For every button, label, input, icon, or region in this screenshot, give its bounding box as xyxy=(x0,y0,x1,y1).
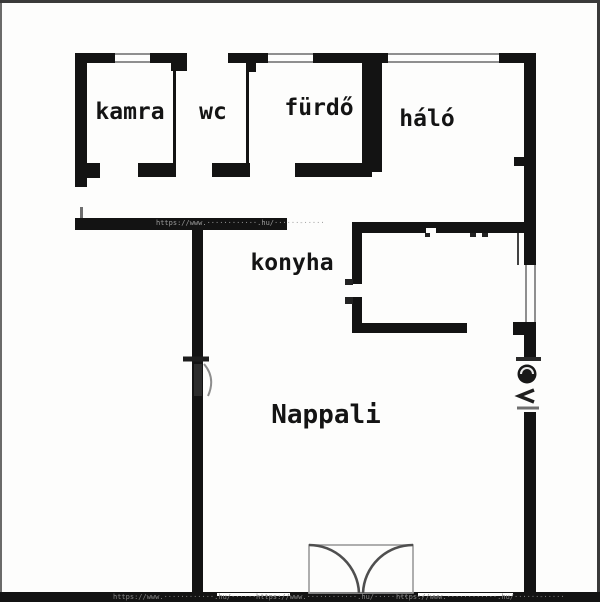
window-halo xyxy=(388,53,499,63)
floor-plan: kamra wc fürdő háló konyha Nappali https… xyxy=(0,0,600,602)
door-jamb-konyha-b xyxy=(345,297,353,304)
wall-kamra-bottom xyxy=(138,163,176,177)
door-jamb-konyha-a xyxy=(345,279,353,285)
wall-right-stub-halo xyxy=(514,157,524,166)
wall-left-foot-stub xyxy=(85,163,100,178)
partition-wc-furdo-head xyxy=(246,63,256,72)
window-konyha-right xyxy=(525,265,536,322)
wall-right-lower xyxy=(524,412,536,593)
room-label-halo: háló xyxy=(399,106,454,132)
wall-left-lower xyxy=(192,229,203,593)
wall-right-upper xyxy=(524,53,536,265)
room-label-furdo: fürdő xyxy=(284,95,353,121)
room-label-nappali: Nappali xyxy=(271,400,381,430)
door-jamb-tick-1 xyxy=(425,233,430,237)
wall-konyha-top xyxy=(352,222,536,233)
wall-top-3 xyxy=(228,53,268,63)
wall-top-2 xyxy=(150,53,187,63)
window-kamra xyxy=(115,53,150,63)
partition-kamra-wc xyxy=(173,63,176,163)
wall-right-stub-konyha xyxy=(513,322,524,335)
entrance-double-door xyxy=(309,545,413,593)
door-jamb-tick-3 xyxy=(482,233,488,237)
image-border-left xyxy=(0,0,2,602)
wall-right-inner-line xyxy=(517,232,519,265)
partition-wc-furdo xyxy=(246,63,249,173)
wall-furdo-bottom xyxy=(295,163,372,177)
room-label-kamra: kamra xyxy=(95,99,164,125)
room-label-konyha: konyha xyxy=(250,250,333,276)
image-border-top xyxy=(0,0,600,3)
room-label-wc: wc xyxy=(199,99,227,125)
wall-konyha-bottom xyxy=(352,323,467,333)
wall-wc-bottom xyxy=(212,163,250,177)
door-jamb-tick-2 xyxy=(470,233,476,237)
wall-furdo-right xyxy=(362,53,382,172)
partition-kamra-wc-head xyxy=(171,63,187,71)
survey-tick xyxy=(80,207,83,218)
wall-right-mid xyxy=(524,322,536,358)
wall-konyha-left-upper xyxy=(352,222,362,284)
watermark-on-wall: https://www.············.hu/······-····· xyxy=(156,220,325,227)
chimney-symbol xyxy=(516,359,541,408)
window-furdo xyxy=(268,53,313,63)
door-symbols-layer xyxy=(0,0,600,602)
watermark-band-right: https://www.············.hu/······-····· xyxy=(396,594,565,601)
